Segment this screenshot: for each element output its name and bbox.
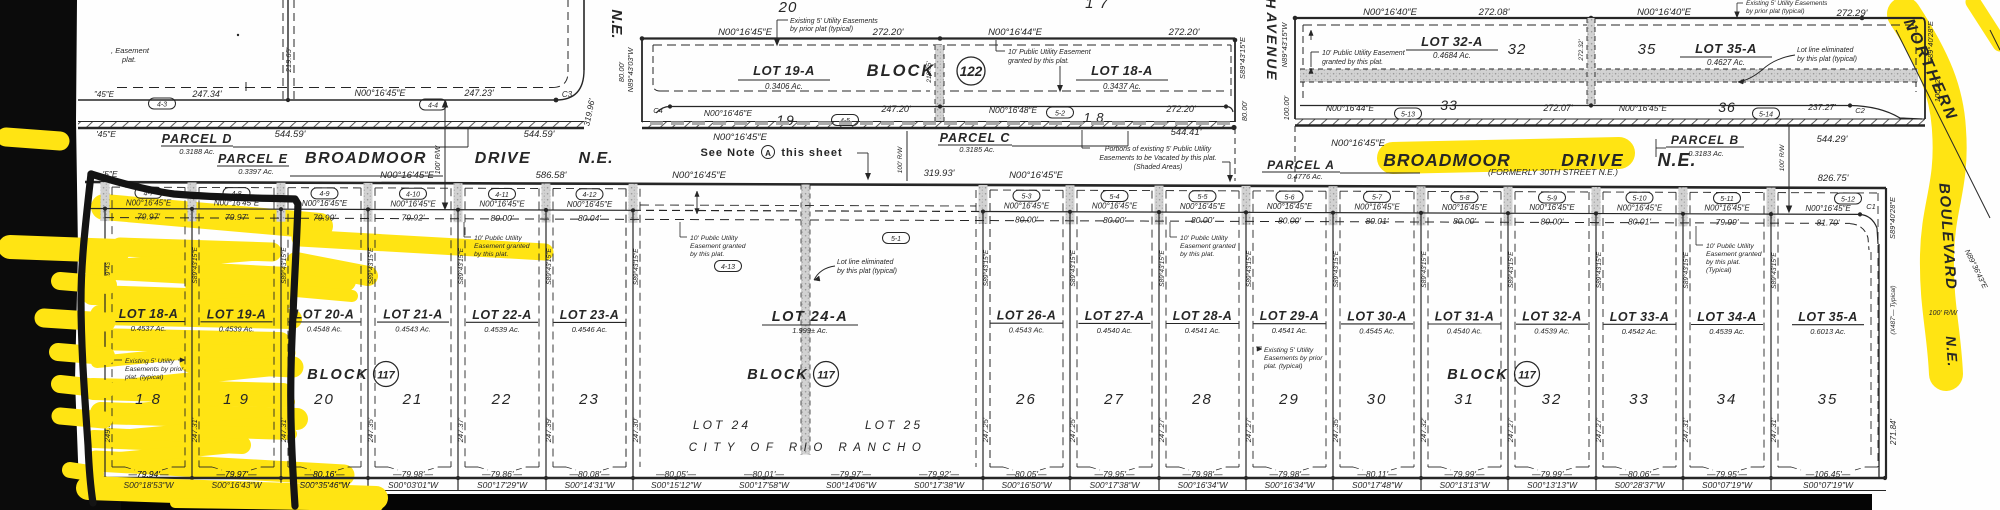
svg-text:N00°16'45″E: N00°16'45″E <box>1009 170 1064 181</box>
svg-text:247.37': 247.37' <box>456 417 465 443</box>
svg-text:N00°16'45″E: N00°16'45″E <box>302 199 348 208</box>
svg-text:247.39': 247.39' <box>544 417 553 443</box>
svg-text:31: 31 <box>1454 391 1475 408</box>
svg-text:C4: C4 <box>653 106 663 115</box>
svg-text:247.25': 247.25' <box>981 417 990 443</box>
svg-text:Easement granted: Easement granted <box>1180 243 1236 250</box>
svg-text:LOT 18-A: LOT 18-A <box>119 307 179 321</box>
svg-text:C1: C1 <box>1866 202 1876 211</box>
svg-text:247.35': 247.35' <box>366 417 375 443</box>
svg-text:0.4541 Ac.: 0.4541 Ac. <box>1185 326 1221 335</box>
svg-text:LOT 24-A: LOT 24-A <box>772 309 848 325</box>
svg-text:LOT 29-A: LOT 29-A <box>1260 309 1320 323</box>
svg-text:247.27': 247.27' <box>1157 417 1166 443</box>
svg-text:0.4539 Ac.: 0.4539 Ac. <box>484 325 520 334</box>
svg-text:5-11: 5-11 <box>1720 196 1734 203</box>
svg-text:LOT 32-A: LOT 32-A <box>1522 310 1582 324</box>
svg-text:S89°43'15″E: S89°43'15″E <box>1682 251 1690 288</box>
svg-text:H: H <box>1263 0 1279 9</box>
svg-text:N00°16'44″E: N00°16'44″E <box>988 27 1043 38</box>
svg-text:1 8: 1 8 <box>135 391 162 408</box>
svg-text:79.99': 79.99' <box>1716 217 1739 227</box>
svg-text:AVENUE: AVENUE <box>1264 11 1280 81</box>
svg-text:S00°17'38″W: S00°17'38″W <box>1089 480 1140 490</box>
svg-text:S89°43'15″E: S89°43'15″E <box>632 248 640 285</box>
svg-text:(FORMERLY 30TH STREET N.E.): (FORMERLY 30TH STREET N.E.) <box>1488 167 1618 177</box>
svg-text:DRIVE: DRIVE <box>475 150 531 167</box>
svg-text:S89°43'15″E: S89°43'15″E <box>1507 251 1515 288</box>
svg-text:CITY OF RIO RANCHO: CITY OF RIO RANCHO <box>689 442 928 454</box>
svg-text:271.84': 271.84' <box>1889 419 1898 446</box>
svg-text:100.00': 100.00' <box>1282 95 1291 120</box>
svg-text:10' Public Utility: 10' Public Utility <box>1180 235 1228 242</box>
svg-text:81.70': 81.70' <box>1817 217 1840 227</box>
svg-text:S00°17'38″W: S00°17'38″W <box>914 480 965 490</box>
svg-text:80.00': 80.00' <box>491 213 514 223</box>
svg-text:by prior plat (typical): by prior plat (typical) <box>790 26 853 33</box>
svg-text:LOT 20-A: LOT 20-A <box>295 307 355 321</box>
svg-text:80.01': 80.01' <box>1366 216 1389 226</box>
svg-text:by prior plat (typical): by prior plat (typical) <box>1746 8 1805 15</box>
svg-text:0.4545 Ac.: 0.4545 Ac. <box>1359 326 1395 335</box>
svg-text:N00°16'45″E: N00°16'45″E <box>718 27 773 38</box>
svg-text:N00°16'45″E: N00°16'45″E <box>479 200 525 209</box>
svg-text:0.3397 Ac.: 0.3397 Ac. <box>238 167 274 176</box>
svg-text:0.4627 Ac.: 0.4627 Ac. <box>1707 58 1745 67</box>
svg-text:80.01': 80.01' <box>1628 217 1651 227</box>
svg-text:100' R/W: 100' R/W <box>897 146 904 173</box>
svg-text:S89°43'15″E: S89°43'15″E <box>1245 250 1253 287</box>
svg-text:247.34': 247.34' <box>191 89 222 99</box>
svg-text:4-12: 4-12 <box>582 192 596 199</box>
svg-text:1 9: 1 9 <box>223 391 250 408</box>
svg-text:by this plat.: by this plat. <box>474 251 508 258</box>
svg-text:LOT 19-A: LOT 19-A <box>753 63 815 78</box>
svg-text:5-10: 5-10 <box>1632 196 1646 203</box>
svg-text:Easement granted: Easement granted <box>690 243 746 250</box>
svg-text:S00°17'48″W: S00°17'48″W <box>1352 480 1403 490</box>
svg-text:0.6013 Ac.: 0.6013 Ac. <box>1810 327 1846 336</box>
svg-text:Existing 5' Utility Easements: Existing 5' Utility Easements <box>790 18 878 25</box>
svg-text:122: 122 <box>960 64 983 79</box>
svg-text:"45″E: "45″E <box>94 90 115 99</box>
svg-text:272.20': 272.20' <box>1165 104 1196 114</box>
svg-text:N00°16'40″E: N00°16'40″E <box>1363 7 1418 18</box>
svg-text:N00°16'45″E: N00°16'45″E <box>1805 204 1851 213</box>
svg-text:5-2: 5-2 <box>1055 110 1065 117</box>
svg-text:S89°43'15″E: S89°43'15″E <box>1069 249 1077 286</box>
svg-text:S00°17'29″W: S00°17'29″W <box>477 480 528 490</box>
svg-text:N00°16'45″E: N00°16'45″E <box>390 199 436 208</box>
svg-text:0.4539 Ac.: 0.4539 Ac. <box>1534 327 1570 336</box>
svg-text:LOT 23-A: LOT 23-A <box>560 308 620 322</box>
svg-text:by this plat.: by this plat. <box>690 251 724 258</box>
svg-text:4-4: 4-4 <box>428 102 438 109</box>
svg-text:80.00': 80.00' <box>617 61 626 82</box>
svg-text:544.29': 544.29' <box>1817 134 1849 145</box>
svg-text:0.4776 Ac.: 0.4776 Ac. <box>1287 172 1323 181</box>
svg-text:S00°14'06″W: S00°14'06″W <box>826 480 877 490</box>
svg-text:PARCEL C: PARCEL C <box>940 131 1011 145</box>
svg-text:(Shaded Areas): (Shaded Areas) <box>1134 164 1183 171</box>
svg-text:LOT 18-A: LOT 18-A <box>1091 63 1153 78</box>
svg-text:C2: C2 <box>1855 106 1865 115</box>
svg-text:0.3185 Ac.: 0.3185 Ac. <box>959 145 995 154</box>
svg-text:247.31': 247.31' <box>279 417 288 443</box>
svg-text:0.3406 Ac.: 0.3406 Ac. <box>765 82 803 91</box>
svg-text:5-1: 5-1 <box>891 236 901 243</box>
svg-text:0.4539 Ac.: 0.4539 Ac. <box>219 324 255 333</box>
svg-text:247.27': 247.27' <box>1244 417 1253 443</box>
svg-text:23: 23 <box>578 391 600 408</box>
svg-text:S89°43'15″E: S89°43'15″E <box>280 247 288 284</box>
svg-text:N00°16'45″E: N00°16'45″E <box>1619 103 1668 113</box>
svg-text:4-13: 4-13 <box>721 264 735 271</box>
svg-text:N00°16'44″E: N00°16'44″E <box>1326 103 1375 113</box>
svg-text:this sheet: this sheet <box>781 147 842 159</box>
svg-text:N00°16'45″E: N00°16'45″E <box>354 88 406 98</box>
svg-text:S00°28'37″W: S00°28'37″W <box>1614 480 1665 490</box>
svg-text:S00°07'19″W: S00°07'19″W <box>1702 480 1753 490</box>
svg-text:35: 35 <box>1818 391 1839 408</box>
svg-text:544.59': 544.59' <box>275 129 307 140</box>
svg-text:80.00': 80.00' <box>1015 215 1038 225</box>
svg-text:544.41': 544.41' <box>1171 127 1203 138</box>
svg-text:28: 28 <box>1191 391 1213 408</box>
svg-text:LOT 22-A: LOT 22-A <box>472 308 532 322</box>
svg-text:219.65': 219.65' <box>926 61 933 84</box>
svg-text:79.99': 79.99' <box>313 212 336 222</box>
svg-text:33: 33 <box>1629 391 1650 408</box>
svg-text:20: 20 <box>778 0 798 16</box>
svg-text:80.00': 80.00' <box>1240 100 1249 121</box>
svg-text:S00°03'01″W: S00°03'01″W <box>388 480 439 490</box>
svg-text:247.27': 247.27' <box>1506 417 1515 443</box>
svg-text:247.30': 247.30' <box>631 417 640 443</box>
svg-text:plat. (typical): plat. (typical) <box>124 374 164 381</box>
svg-text:S00°18'53″W: S00°18'53″W <box>123 480 174 490</box>
svg-text:29: 29 <box>1278 391 1300 408</box>
svg-text:247.20': 247.20' <box>880 104 911 114</box>
svg-text:0.4540 Ac.: 0.4540 Ac. <box>1447 327 1483 336</box>
svg-text:S00°07'19″W: S00°07'19″W <box>1803 480 1854 490</box>
svg-text:0.4542 Ac.: 0.4542 Ac. <box>1622 327 1658 336</box>
svg-text:5-8: 5-8 <box>1459 195 1469 202</box>
svg-text:1.999± Ac.: 1.999± Ac. <box>792 326 828 335</box>
svg-text:247.31': 247.31' <box>1681 417 1690 443</box>
svg-text:117: 117 <box>1518 370 1536 382</box>
svg-text:LOT 21-A: LOT 21-A <box>383 308 443 322</box>
svg-text:LOT 27-A: LOT 27-A <box>1085 309 1145 323</box>
svg-text:N89°43'03″W: N89°43'03″W <box>626 47 635 93</box>
svg-text:26: 26 <box>1015 391 1037 408</box>
svg-text:S00°16'34″W: S00°16'34″W <box>1177 480 1228 490</box>
svg-text:4-11: 4-11 <box>495 192 509 199</box>
svg-text:30: 30 <box>1367 391 1388 408</box>
svg-text:(X487'— Typical): (X487'— Typical) <box>1890 285 1897 334</box>
svg-text:100' R/W: 100' R/W <box>1929 310 1959 317</box>
svg-text:N00°16'45″E: N00°16'45″E <box>672 170 727 181</box>
svg-text:by this plat (typical): by this plat (typical) <box>1797 56 1857 63</box>
svg-text:0.4546 Ac.: 0.4546 Ac. <box>572 325 608 334</box>
svg-text:N00°16'45″E: N00°16'45″E <box>126 198 172 207</box>
svg-text:N00°16'45″E: N00°16'45″E <box>567 200 613 209</box>
svg-text:PARCEL A: PARCEL A <box>1267 158 1335 172</box>
svg-text:247.31': 247.31' <box>190 417 199 443</box>
svg-text:0.3188 Ac.: 0.3188 Ac. <box>179 147 215 156</box>
svg-text:S00°16'34″W: S00°16'34″W <box>1264 480 1315 490</box>
svg-text:247.27': 247.27' <box>1594 417 1603 443</box>
svg-text:LOT 33-A: LOT 33-A <box>1610 310 1670 324</box>
svg-text:LOT 35-A: LOT 35-A <box>1695 41 1757 56</box>
svg-text:Easement granted: Easement granted <box>474 243 530 250</box>
svg-text:33: 33 <box>1440 97 1458 113</box>
svg-text:272.07': 272.07' <box>1542 103 1573 113</box>
svg-text:N.E.: N.E. <box>608 9 625 38</box>
svg-text:Easements by prior: Easements by prior <box>1264 355 1323 362</box>
svg-text:LOT 19-A: LOT 19-A <box>207 307 267 321</box>
svg-text:by this plat.: by this plat. <box>1706 259 1740 266</box>
svg-text:5-5: 5-5 <box>1197 194 1207 201</box>
svg-text:34: 34 <box>1717 391 1738 408</box>
svg-text:N00°16'46″E: N00°16'46″E <box>704 108 753 118</box>
svg-text:10' Public Utility Easement: 10' Public Utility Easement <box>1008 49 1092 56</box>
svg-text:21: 21 <box>402 391 424 408</box>
svg-text:N00°16'45″E: N00°16'45″E <box>1092 202 1138 211</box>
svg-text:N00°16'45″E: N00°16'45″E <box>1180 202 1226 211</box>
svg-text:36: 36 <box>1718 99 1736 115</box>
svg-text:—79.97'—: —79.97'— <box>216 469 257 479</box>
svg-text:5-9: 5-9 <box>1547 195 1557 202</box>
svg-text:1 7: 1 7 <box>1085 0 1109 12</box>
svg-text:80.04': 80.04' <box>578 213 601 223</box>
svg-text:272.29': 272.29' <box>1836 8 1869 19</box>
svg-text:S00°17'58″W: S00°17'58″W <box>739 480 790 490</box>
svg-text:79.97': 79.97' <box>137 212 160 222</box>
svg-text:by this plat.: by this plat. <box>1180 251 1214 258</box>
svg-text:S00°16'43″W: S00°16'43″W <box>211 480 262 490</box>
svg-text:S89°43'15″E: S89°43'15″E <box>1420 251 1428 288</box>
svg-text:N00°16'45″E: N00°16'45″E <box>1617 203 1663 212</box>
svg-text:79.97': 79.97' <box>225 212 248 222</box>
svg-text:Existing 5' Utility Easements: Existing 5' Utility Easements <box>1746 0 1828 7</box>
svg-text:272.20': 272.20' <box>1168 27 1201 38</box>
svg-text:0.4548 Ac.: 0.4548 Ac. <box>307 324 343 333</box>
svg-text:272.08': 272.08' <box>1478 7 1511 18</box>
svg-text:N.E.: N.E. <box>578 150 613 167</box>
svg-text:247.23': 247.23' <box>463 88 494 98</box>
svg-text:See Note: See Note <box>700 147 755 159</box>
svg-text:S89°43'15″E: S89°43'15″E <box>191 246 199 283</box>
svg-text:S00°15'12″W: S00°15'12″W <box>651 480 702 490</box>
svg-text:79.92': 79.92' <box>402 213 425 223</box>
svg-text:Easements to be Vacated by thi: Easements to be Vacated by this plat. <box>1099 155 1216 162</box>
svg-text:N00°16'45″E: N00°16'45″E <box>1267 202 1313 211</box>
svg-text:N00°16'45″E: N00°16'45″E <box>1529 203 1575 212</box>
svg-text:826.75': 826.75' <box>1818 173 1850 184</box>
svg-text:5-4: 5-4 <box>1109 194 1119 201</box>
svg-text:N00°16'45″E: N00°16'45″E <box>1331 138 1386 149</box>
svg-text:LOT 25: LOT 25 <box>865 418 923 432</box>
svg-text:N00°16'45″E: N00°16'45″E <box>1354 203 1400 212</box>
svg-text:S89°43'15″E: S89°43'15″E <box>1158 250 1166 287</box>
svg-text:80.00': 80.00' <box>1541 216 1564 226</box>
svg-text:—79.94'—: —79.94'— <box>128 469 169 479</box>
svg-text:S00°13'13″W: S00°13'13″W <box>1439 480 1490 490</box>
svg-text:27: 27 <box>1103 391 1125 408</box>
svg-text:granted by this plat.: granted by this plat. <box>1322 59 1383 66</box>
svg-text:PARCEL E: PARCEL E <box>218 152 288 166</box>
svg-text:0.3437 Ac.: 0.3437 Ac. <box>1103 82 1141 91</box>
svg-text:586.58': 586.58' <box>536 170 568 181</box>
svg-text:32: 32 <box>1508 41 1527 58</box>
svg-text:N00°16'48″E: N00°16'48″E <box>989 105 1038 115</box>
svg-text:N00°16'45″E: N00°16'45″E <box>1442 203 1488 212</box>
svg-text:by this plat (typical): by this plat (typical) <box>837 268 897 275</box>
svg-text:N00°16'40″E: N00°16'40″E <box>1637 7 1692 18</box>
svg-text:PARCEL D: PARCEL D <box>162 132 233 146</box>
svg-text:117: 117 <box>377 370 395 382</box>
svg-text:4-9: 4-9 <box>319 191 329 198</box>
svg-text:BLOCK: BLOCK <box>747 367 809 383</box>
svg-text:10' Public Utility Easement: 10' Public Utility Easement <box>1322 50 1406 57</box>
svg-text:5-12: 5-12 <box>1841 196 1855 203</box>
svg-text:100' R/W: 100' R/W <box>435 144 442 174</box>
svg-text:S00°35'46″W: S00°35'46″W <box>299 480 350 490</box>
svg-text:0.4540 Ac.: 0.4540 Ac. <box>1097 326 1133 335</box>
svg-text:Existing 5' Utility: Existing 5' Utility <box>125 358 175 365</box>
svg-text:LOT 32-A: LOT 32-A <box>1421 34 1483 49</box>
svg-text:S89°40'28″E: S89°40'28″E <box>1888 196 1897 239</box>
svg-text:0.4543 Ac.: 0.4543 Ac. <box>1009 326 1045 335</box>
svg-text:PARCEL B: PARCEL B <box>1671 133 1739 147</box>
svg-text:247.32': 247.32' <box>1419 417 1428 443</box>
svg-text:LOT 26-A: LOT 26-A <box>997 309 1057 323</box>
svg-text:247.31': 247.31' <box>1769 417 1778 443</box>
svg-text:5-14: 5-14 <box>1759 111 1773 118</box>
svg-text:plat. (typical): plat. (typical) <box>1263 363 1303 370</box>
svg-text:S89°43'15″E: S89°43'15″E <box>982 249 990 286</box>
svg-text:BLOCK: BLOCK <box>1447 367 1509 383</box>
svg-text:N00°16'45″E: N00°16'45″E <box>713 132 768 143</box>
svg-text:LOT 35-A: LOT 35-A <box>1798 310 1858 324</box>
svg-text:Existing 5' Utility: Existing 5' Utility <box>1264 347 1314 354</box>
svg-text:10' Public Utility: 10' Public Utility <box>474 235 522 242</box>
svg-text:5-6: 5-6 <box>1284 194 1294 201</box>
svg-text:S89°43'15″E: S89°43'15″E <box>367 247 375 284</box>
svg-text:N.E.: N.E. <box>1943 336 1961 368</box>
svg-text:C3: C3 <box>562 90 573 99</box>
svg-text:22: 22 <box>491 391 513 408</box>
svg-text:N00°16'45″E: N00°16'45″E <box>380 170 435 181</box>
svg-text:Lot line eliminated: Lot line eliminated <box>837 259 895 266</box>
svg-text:LOT 30-A: LOT 30-A <box>1347 309 1407 323</box>
svg-text:35: 35 <box>1638 41 1657 58</box>
svg-text:5-7: 5-7 <box>1372 195 1383 202</box>
svg-text:BROADMOOR: BROADMOOR <box>305 150 427 167</box>
svg-text:—80.16'—: —80.16'— <box>304 469 345 479</box>
svg-text:10' Public Utility: 10' Public Utility <box>1706 243 1754 250</box>
svg-text:117: 117 <box>817 370 835 382</box>
svg-text:0.4684 Ac.: 0.4684 Ac. <box>1433 51 1471 60</box>
svg-text:5-3: 5-3 <box>1021 194 1031 201</box>
svg-text:S89°43'15″E: S89°43'15″E <box>457 247 465 284</box>
svg-text:S89°43'15″E: S89°43'15″E <box>1770 252 1778 289</box>
svg-text:319.93': 319.93' <box>924 168 956 179</box>
svg-text:S00°13'13″W: S00°13'13″W <box>1527 480 1578 490</box>
svg-text:544.59': 544.59' <box>524 129 556 140</box>
svg-text:80.00': 80.00' <box>1191 215 1214 225</box>
svg-text:80.00': 80.00' <box>1453 216 1476 226</box>
svg-text:247.25': 247.25' <box>1068 417 1077 443</box>
svg-text:(Typical): (Typical) <box>1706 267 1732 274</box>
svg-text:Easement granted: Easement granted <box>1706 251 1762 258</box>
svg-text:0.4543 Ac.: 0.4543 Ac. <box>395 325 431 334</box>
svg-text:0.4539 Ac.: 0.4539 Ac. <box>1709 327 1745 336</box>
svg-text:Portions of existing 5' Public: Portions of existing 5' Public Utility <box>1105 146 1212 153</box>
svg-text:0.4537 Ac.: 0.4537 Ac. <box>131 324 167 333</box>
svg-text:32: 32 <box>1542 391 1563 408</box>
svg-text:N00°16'45″E: N00°16'45″E <box>1704 204 1750 213</box>
svg-text:5-13: 5-13 <box>1401 111 1415 118</box>
svg-text:4-10: 4-10 <box>406 192 420 199</box>
svg-text:100' R/W: 100' R/W <box>1779 144 1786 171</box>
svg-text:LOT 24: LOT 24 <box>693 418 751 432</box>
svg-text:272.20': 272.20' <box>872 27 905 38</box>
svg-text:Lot line eliminated: Lot line eliminated <box>1797 47 1855 54</box>
svg-text:S89°43'15″E: S89°43'15″E <box>1238 36 1247 79</box>
svg-text:Easements by prior: Easements by prior <box>125 366 184 373</box>
svg-text:S89°43'15″E: S89°43'15″E <box>1595 251 1603 288</box>
svg-text:272.32': 272.32' <box>1578 39 1585 62</box>
svg-text:80.00': 80.00' <box>1103 215 1126 225</box>
svg-text:LOT 28-A: LOT 28-A <box>1173 309 1233 323</box>
svg-text:S00°14'31″W: S00°14'31″W <box>564 480 615 490</box>
svg-text:LOT 31-A: LOT 31-A <box>1435 310 1495 324</box>
svg-text:A: A <box>765 149 771 158</box>
svg-text:237.27': 237.27' <box>1807 102 1836 112</box>
svg-text:, Easement: , Easement <box>111 46 150 55</box>
svg-text:80.00': 80.00' <box>1278 216 1301 226</box>
svg-text:N.E.: N.E. <box>1657 150 1696 170</box>
svg-text:219.65': 219.65' <box>284 47 293 73</box>
svg-text:N00°16'45″E: N00°16'45″E <box>1004 201 1050 210</box>
svg-text:plat.: plat. <box>121 55 136 64</box>
svg-text:N89°43'15″W: N89°43'15″W <box>1280 22 1289 68</box>
svg-text:S89°43'15″E: S89°43'15″E <box>1332 250 1340 287</box>
svg-text:'45″E: '45″E <box>96 129 116 139</box>
svg-text:247.35': 247.35' <box>1331 417 1340 443</box>
svg-text:10' Public Utility: 10' Public Utility <box>690 235 738 242</box>
svg-text:BLOCK: BLOCK <box>307 367 369 383</box>
svg-text:S00°16'50″W: S00°16'50″W <box>1001 480 1052 490</box>
svg-text:0.4541 Ac.: 0.4541 Ac. <box>1272 326 1308 335</box>
svg-text:granted by this plat.: granted by this plat. <box>1008 58 1069 65</box>
svg-text:20: 20 <box>313 391 335 408</box>
svg-text:LOT 34-A: LOT 34-A <box>1697 310 1757 324</box>
svg-text:S89°43'15″E: S89°43'15″E <box>545 248 553 285</box>
svg-text:4-3: 4-3 <box>157 101 167 108</box>
